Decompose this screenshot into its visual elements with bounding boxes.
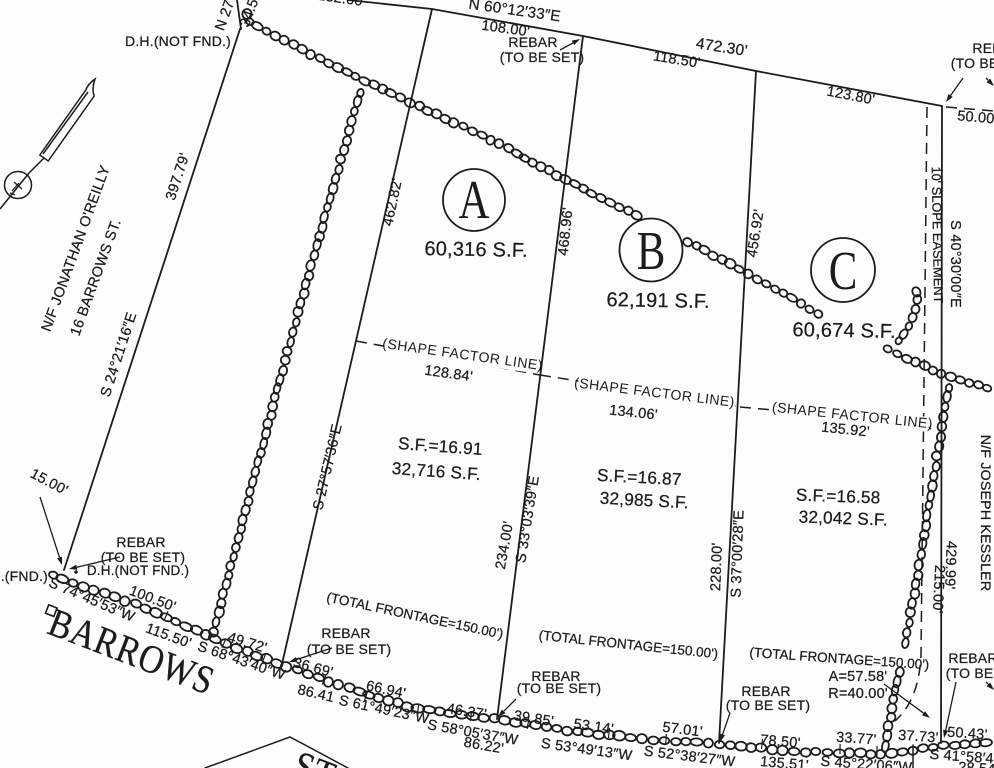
svg-text:D.H.(NOT FND.): D.H.(NOT FND.) — [87, 563, 189, 578]
svg-text:REBAR: REBAR — [508, 34, 557, 50]
svg-text:N/F JOSEPH KESSLER: N/F JOSEPH KESSLER — [977, 435, 993, 592]
svg-text:32,042 S.F.: 32,042 S.F. — [798, 506, 888, 529]
svg-text:R=40.00': R=40.00' — [828, 686, 888, 702]
svg-text:REBAR: REBAR — [321, 625, 370, 641]
svg-text:50.43': 50.43' — [947, 725, 988, 744]
svg-text:REBAR: REBAR — [948, 650, 994, 666]
svg-text:(TO BE SET): (TO BE SET) — [946, 665, 994, 681]
svg-text:C: C — [829, 240, 858, 301]
svg-text:228.00': 228.00' — [708, 542, 726, 591]
svg-text:62,191 S.F.: 62,191 S.F. — [606, 289, 710, 313]
svg-text:B: B — [637, 220, 666, 281]
svg-text:60,674 S.F.: 60,674 S.F. — [792, 319, 896, 343]
svg-text:33.77': 33.77' — [836, 730, 877, 749]
svg-text:S 37°00′28″E: S 37°00′28″E — [728, 510, 747, 598]
svg-text:(TO BE SET): (TO BE SET) — [726, 697, 810, 713]
svg-text:A: A — [459, 169, 490, 230]
svg-text:(TO BE SET): (TO BE SET) — [517, 680, 601, 696]
svg-text:B.(FND.): B.(FND.) — [0, 568, 48, 584]
svg-text:37.73': 37.73' — [898, 728, 939, 747]
svg-text:10' SLOPE EASEMENT: 10' SLOPE EASEMENT — [929, 166, 946, 303]
svg-text:60,316 S.F.: 60,316 S.F. — [424, 238, 528, 262]
svg-text:(TO BE SET): (TO BE SET) — [951, 55, 994, 71]
svg-text:REBAR: REBAR — [972, 40, 994, 56]
svg-text:REBAR: REBAR — [116, 534, 165, 550]
svg-text:S 40°30′00″E: S 40°30′00″E — [947, 220, 963, 308]
svg-text:215.00': 215.00' — [929, 565, 948, 614]
svg-text:(TO BE SET): (TO BE SET) — [307, 641, 391, 657]
svg-text:28.54': 28.54' — [958, 760, 994, 768]
svg-text:D.H.(NOT FND.): D.H.(NOT FND.) — [125, 33, 231, 49]
svg-text:(TO BE SET): (TO BE SET) — [500, 49, 584, 65]
svg-text:S.F.=16.58: S.F.=16.58 — [796, 485, 881, 508]
svg-text:A=57.58': A=57.58' — [829, 669, 888, 685]
